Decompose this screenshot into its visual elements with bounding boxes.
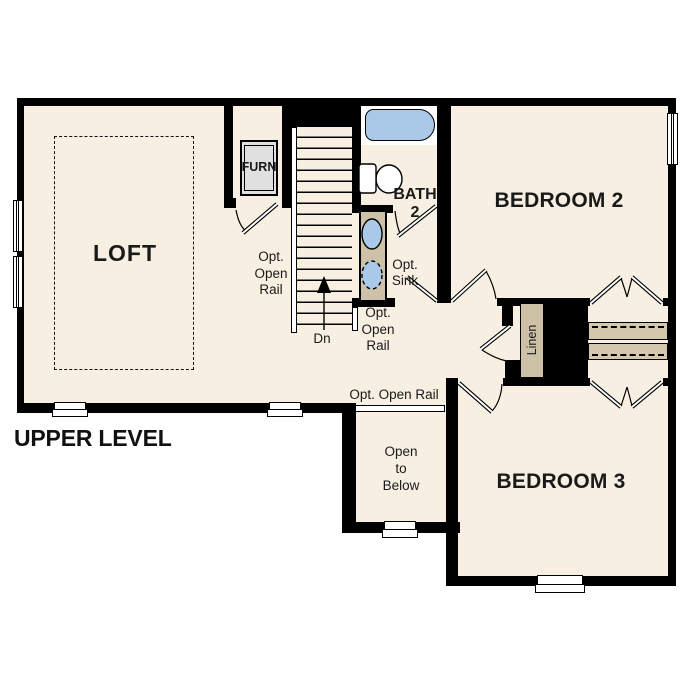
plan-symbols-layer <box>0 0 687 687</box>
opt-open-rail-bottom-label: Opt. Open Rail <box>344 387 444 404</box>
bedroom2-closet-doors <box>591 277 662 303</box>
loft-label: LOFT <box>55 240 195 267</box>
floor-plan: LOFT BEDROOM 2 BEDROOM 3 BATH 2 FURN Opt… <box>0 0 687 687</box>
opt-open-rail-right-label: Opt. Open Rail <box>352 305 404 355</box>
furnace-closet-door <box>236 204 277 233</box>
plan-title: UPPER LEVEL <box>14 425 172 452</box>
bedroom3-door <box>459 383 502 412</box>
bedroom3-label: BEDROOM 3 <box>451 470 671 494</box>
bath-label-line1: BATH <box>391 186 439 204</box>
down-label: Dn <box>306 331 338 348</box>
linen-label: Linen <box>525 315 539 365</box>
stair-down-arrow-icon <box>317 276 331 330</box>
bedroom2-door <box>452 270 496 301</box>
bedroom2-label: BEDROOM 2 <box>449 189 669 213</box>
optional-sink <box>362 261 382 289</box>
sink <box>362 219 382 249</box>
furnace-label: FURN <box>234 160 284 174</box>
hall-door-linen <box>481 326 510 361</box>
bedroom3-closet-doors <box>591 382 662 407</box>
opt-sink-label: Opt. Sink <box>384 257 426 288</box>
bath-label-line2: 2 <box>391 204 439 222</box>
bath-label: BATH 2 <box>391 186 439 222</box>
open-to-below-label: Open to Below <box>370 443 432 494</box>
opt-open-rail-left-label: Opt. Open Rail <box>246 249 296 299</box>
